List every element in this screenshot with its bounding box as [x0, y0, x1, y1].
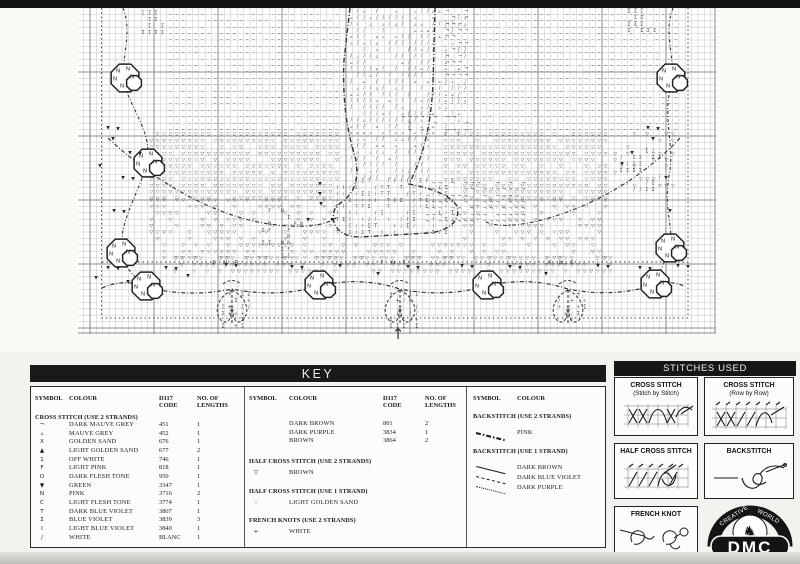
symbol-glyph: ▽: [249, 469, 263, 478]
lengths-count: 3: [197, 516, 239, 525]
key-row: TDARK BLUE VIOLET38071: [35, 508, 244, 517]
thread-code: BLANC: [159, 534, 197, 543]
symbol-glyph: I: [35, 525, 49, 534]
backstitch-1-rows: DARK BROWNDARK BLUE VIOLETDARK PURPLE: [473, 463, 605, 493]
half-cross-stitch-diagram: [615, 456, 697, 499]
lengths-count: 1: [197, 421, 239, 430]
stitch-box-title: CROSS STITCH: [630, 382, 681, 390]
colour-name: PINK: [517, 428, 605, 438]
stitch-box-cross-stitch-by-stitch: CROSS STITCH (Stitch by Stitch): [614, 377, 698, 436]
colour-name: PINK: [69, 490, 159, 499]
key-column-3-headers: SYMBOL COLOUR: [473, 395, 605, 411]
lengths-count: 2: [197, 490, 239, 499]
key-column-2: SYMBOL COLOUR D117 CODE NO. OF LENGTHS D…: [244, 387, 466, 547]
dmc-logo: ♞ CREATIVE WORLD DMC: [704, 500, 796, 560]
stitch-box-backstitch: BACKSTITCH: [704, 443, 794, 499]
key-row: ΣBLUE VIOLET38393: [35, 516, 244, 525]
colour-name: DARK BROWN: [289, 420, 383, 429]
lengths-count: 1: [197, 508, 239, 517]
key-row: /WHITEBLANC1: [35, 534, 244, 543]
header-colour: COLOUR: [69, 395, 159, 411]
symbol-glyph: [473, 463, 507, 473]
backstitch-diagram: [705, 456, 793, 499]
symbol-glyph: N: [35, 490, 49, 499]
thread-code: 3774: [159, 499, 197, 508]
symbol-glyph: ▼: [35, 482, 49, 491]
symbol-glyph: /: [35, 534, 49, 543]
lengths-count: 2: [425, 437, 455, 446]
stitches-used-header-bar: STITCHES USED: [614, 361, 796, 376]
stitch-box-title: HALF CROSS STITCH: [620, 448, 692, 456]
section-title-cross-stitch: CROSS STITCH (USE 2 STRANDS): [35, 414, 244, 421]
cross-stitch-row-diagram: [705, 397, 793, 436]
colour-name: GREEN: [69, 482, 159, 491]
header-colour: COLOUR: [289, 395, 383, 411]
key-row: ¬DARK MAUVE GREY4511: [35, 421, 244, 430]
key-row: DARK PURPLE38341: [249, 429, 466, 438]
symbol-glyph: O: [35, 473, 49, 482]
colour-name: DARK BROWN: [517, 463, 605, 473]
thread-code: 452: [159, 430, 197, 439]
colour-name: WHITE: [69, 534, 159, 543]
backstitch-2-rows: PINK: [473, 428, 605, 438]
thread-code: 746: [159, 456, 197, 465]
lengths-count: 1: [197, 499, 239, 508]
symbol-glyph: [473, 428, 507, 438]
key-header-bar: KEY: [30, 365, 606, 382]
symbol-glyph: +: [249, 528, 263, 537]
lengths-count: 1: [197, 473, 239, 482]
header-lengths: NO. OF LENGTHS: [197, 395, 239, 411]
stitch-box-french-knot: FRENCH KNOT: [614, 506, 698, 556]
key-row: DARK PURPLE: [473, 483, 605, 493]
cross-stitch-rows: ¬DARK MAUVE GREY4511▵MAUVE GREY4521XGOLD…: [35, 421, 244, 542]
colour-name: BROWN: [289, 469, 383, 478]
key-row: ▵MAUVE GREY4521: [35, 430, 244, 439]
stitches-used-title: STITCHES USED: [663, 363, 747, 374]
section-title-backstitch-1: BACKSTITCH (USE 1 STRAND): [473, 448, 605, 455]
key-column-1: SYMBOL COLOUR D117 CODE NO. OF LENGTHS C…: [31, 387, 244, 547]
lengths-count: 1: [197, 525, 239, 534]
symbol-glyph: ▲: [35, 447, 49, 456]
lengths-count: 1: [197, 430, 239, 439]
key-row: ODARK FLESH TONE9501: [35, 473, 244, 482]
key-row: +WHITE: [249, 528, 466, 537]
cross-stitch-diagram: [615, 397, 697, 436]
thread-code: 3840: [159, 525, 197, 534]
scan-bottom-edge: [0, 552, 800, 564]
key-box: SYMBOL COLOUR D117 CODE NO. OF LENGTHS C…: [30, 386, 606, 548]
key-column-3: SYMBOL COLOUR BACKSTITCH (USE 2 STRANDS)…: [466, 387, 605, 547]
key-row: 1OFF WHITE7461: [35, 456, 244, 465]
thread-code: 3347: [159, 482, 197, 491]
thread-code: 801: [383, 420, 425, 429]
key-row: ▲LIGHT GOLDEN SAND6772: [35, 447, 244, 456]
key-row: ▼GREEN33471: [35, 482, 244, 491]
thread-code: 3807: [159, 508, 197, 517]
thread-code: 676: [159, 438, 197, 447]
section-title-backstitch-2: BACKSTITCH (USE 2 STRANDS): [473, 413, 605, 420]
symbol-glyph: ¬: [35, 421, 49, 430]
key-row: FLIGHT PINK8181: [35, 464, 244, 473]
colour-name: LIGHT BLUE VIOLET: [69, 525, 159, 534]
center-marker-arrow: ↑: [390, 325, 406, 347]
key-row: DARK BROWN8012: [249, 420, 466, 429]
stitch-box-half-cross: HALF CROSS STITCH: [614, 443, 698, 499]
header-symbol: SYMBOL: [249, 395, 289, 411]
header-symbol: SYMBOL: [473, 395, 517, 411]
colour-name: MAUVE GREY: [69, 430, 159, 439]
key-column-2-headers: SYMBOL COLOUR D117 CODE NO. OF LENGTHS: [249, 395, 466, 411]
stitch-box-subtitle: (Row by Row): [729, 390, 769, 397]
scanned-pattern-page: ↑ KEY SYMBOL COLOUR D117 CODE NO. OF LEN…: [0, 0, 800, 564]
top-black-bar: [0, 0, 800, 8]
symbol-glyph: F: [35, 464, 49, 473]
half-cross-1-rows: –LIGHT GOLDEN SAND: [249, 499, 466, 508]
key-row: CLIGHT FLESH TONE37741: [35, 499, 244, 508]
key-row: XGOLDEN SAND6761: [35, 438, 244, 447]
thread-code: 3839: [159, 516, 197, 525]
key-row: –LIGHT GOLDEN SAND: [249, 499, 466, 508]
colour-name: DARK FLESH TONE: [69, 473, 159, 482]
colour-name: BROWN: [289, 437, 383, 446]
colour-name: WHITE: [289, 528, 383, 537]
lengths-count: 1: [197, 482, 239, 491]
french-knot-diagram: [615, 519, 697, 556]
key-title: KEY: [302, 367, 335, 381]
colour-name: DARK BLUE VIOLET: [69, 508, 159, 517]
stitch-box-title: BACKSTITCH: [727, 448, 772, 456]
thread-code: 3834: [383, 429, 425, 438]
stitch-box-subtitle: (Stitch by Stitch): [633, 390, 679, 397]
stitch-box-cross-row-by-row: CROSS STITCH (Row by Row): [704, 377, 794, 436]
key-row: BROWN38642: [249, 437, 466, 446]
section-title-half-cross-2: HALF CROSS STITCH (USE 2 STRANDS): [249, 458, 466, 465]
cross-stitch-chart: [78, 8, 716, 334]
lengths-count: 1: [197, 464, 239, 473]
symbol-glyph: X: [35, 438, 49, 447]
lengths-count: 2: [197, 447, 239, 456]
lengths-count: 2: [425, 420, 455, 429]
header-colour: COLOUR: [517, 395, 605, 411]
header-code: D117 CODE: [159, 395, 197, 411]
chart-canvas: [78, 8, 716, 334]
thread-code: 818: [159, 464, 197, 473]
symbol-glyph: –: [249, 499, 263, 508]
section-title-half-cross-1: HALF CROSS STITCH (USE 1 STRAND): [249, 488, 466, 495]
header-symbol: SYMBOL: [35, 395, 69, 411]
header-lengths: NO. OF LENGTHS: [425, 395, 455, 411]
thread-code: 950: [159, 473, 197, 482]
symbol-glyph: 1: [35, 456, 49, 465]
colour-name: DARK PURPLE: [517, 483, 605, 493]
stitch-box-title: CROSS STITCH: [723, 382, 774, 390]
key-row: NPINK37162: [35, 490, 244, 499]
key-row: ILIGHT BLUE VIOLET38401: [35, 525, 244, 534]
lengths-count: 1: [197, 456, 239, 465]
colour-name: LIGHT GOLDEN SAND: [289, 499, 383, 508]
colour-name: DARK BLUE VIOLET: [517, 473, 605, 483]
key-row: PINK: [473, 428, 605, 438]
colour-name: GOLDEN SAND: [69, 438, 159, 447]
colour-name: LIGHT FLESH TONE: [69, 499, 159, 508]
colour-name: DARK PURPLE: [289, 429, 383, 438]
lengths-count: 1: [425, 429, 455, 438]
symbol-glyph: Σ: [35, 516, 49, 525]
symbol-glyph: C: [35, 499, 49, 508]
key-row: ▽BROWN: [249, 469, 466, 478]
key-column-1-headers: SYMBOL COLOUR D117 CODE NO. OF LENGTHS: [35, 395, 244, 411]
colour-name: OFF WHITE: [69, 456, 159, 465]
french-knot-rows: +WHITE: [249, 528, 466, 537]
backstitch-line-sample: [476, 486, 506, 496]
key-row: DARK BLUE VIOLET: [473, 473, 605, 483]
lengths-count: 1: [197, 438, 239, 447]
symbol-glyph: ▵: [35, 430, 49, 439]
colour-name: LIGHT PINK: [69, 464, 159, 473]
header-code: D117 CODE: [383, 395, 425, 411]
thread-code: 3864: [383, 437, 425, 446]
cross-stitch-rows-continued: DARK BROWN8012DARK PURPLE38341BROWN38642: [249, 420, 466, 446]
colour-name: LIGHT GOLDEN SAND: [69, 447, 159, 456]
colour-name: DARK MAUVE GREY: [69, 421, 159, 430]
thread-code: 677: [159, 447, 197, 456]
section-title-french-knots: FRENCH KNOTS (USE 2 STRANDS): [249, 517, 466, 524]
lengths-count: 1: [197, 534, 239, 543]
thread-code: 3716: [159, 490, 197, 499]
half-cross-2-rows: ▽BROWN: [249, 469, 466, 478]
thread-code: 451: [159, 421, 197, 430]
colour-name: BLUE VIOLET: [69, 516, 159, 525]
backstitch-line-sample: [476, 432, 506, 441]
key-row: DARK BROWN: [473, 463, 605, 473]
symbol-glyph: T: [35, 508, 49, 517]
stitch-box-title: FRENCH KNOT: [631, 511, 681, 519]
